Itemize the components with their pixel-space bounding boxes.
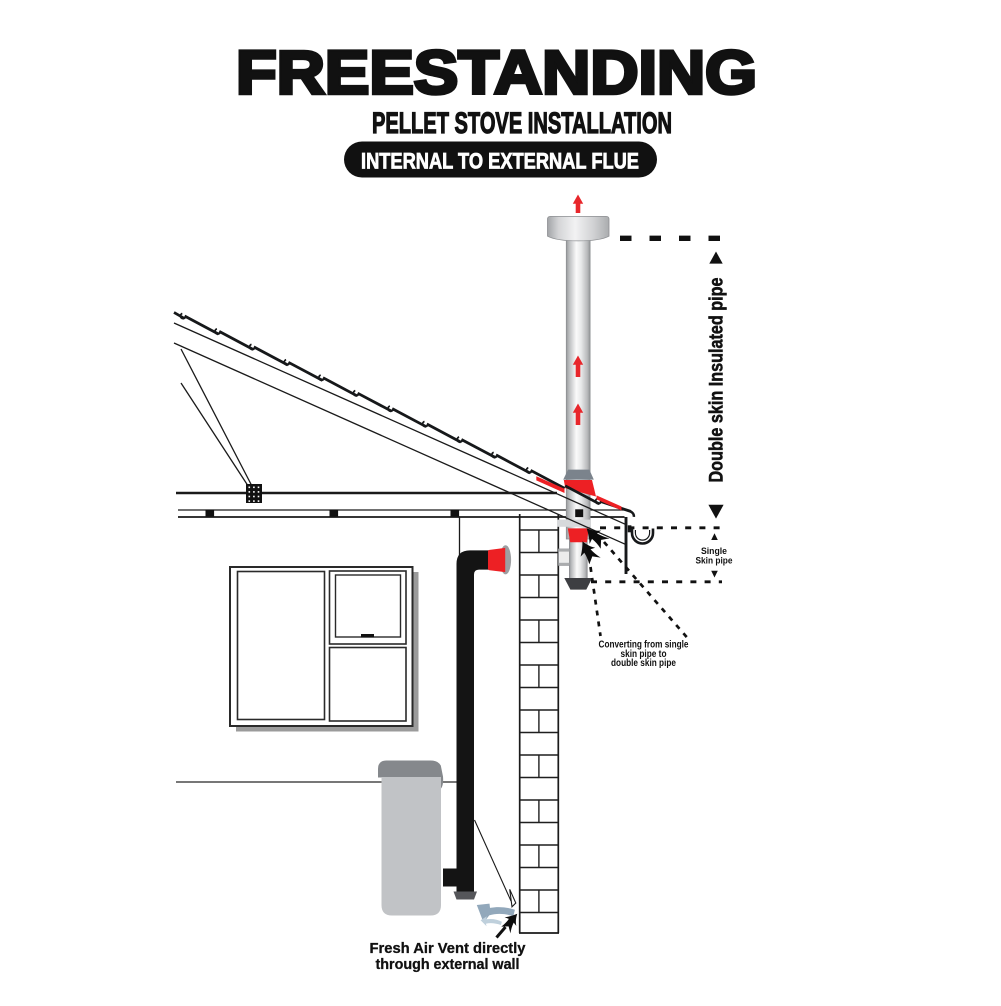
svg-text:FREESTANDING: FREESTANDING [236, 39, 757, 108]
svg-text:through external wall: through external wall [376, 957, 520, 973]
svg-text:INTERNAL TO EXTERNAL FLUE: INTERNAL TO EXTERNAL FLUE [361, 149, 639, 174]
svg-text:double skin pipe: double skin pipe [611, 658, 676, 669]
svg-text:Skin pipe: Skin pipe [696, 556, 733, 567]
svg-text:Double skin Insulated pipe: Double skin Insulated pipe [705, 277, 727, 482]
svg-text:Fresh Air Vent directly: Fresh Air Vent directly [370, 941, 526, 957]
svg-text:PELLET STOVE INSTALLATION: PELLET STOVE INSTALLATION [372, 107, 672, 140]
